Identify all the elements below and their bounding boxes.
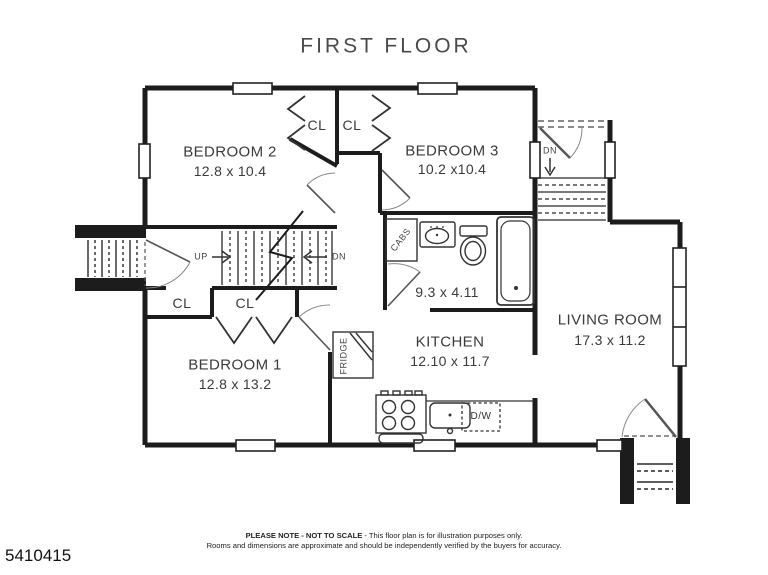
door-arc [622,399,645,437]
fridge-label: FRIDGE [340,337,349,374]
stairs-upper-right [538,121,606,220]
stairs-left-exterior [75,225,146,291]
disclaimer-line1: PLEASE NOTE - NOT TO SCALE - This floor … [0,531,768,540]
closet-label: CL [308,118,327,132]
triple-window [673,248,686,366]
room-dims-bedroom1: 12.8 x 13.2 [199,377,272,391]
room-dims-bathroom: 9.3 x 4.11 [415,285,478,299]
bedroom1-door [299,305,330,350]
closet-label: CL [343,118,362,132]
bedroom2-door [307,173,335,213]
bathroom-sink [420,222,455,247]
up-arrow-icon [212,251,230,263]
toilet [460,226,487,265]
room-dims-kitchen: 12.10 x 11.7 [410,354,490,368]
disclaimer-bold: PLEASE NOTE - NOT TO SCALE [246,531,363,540]
plan-title: FIRST FLOOR [300,36,471,57]
disclaimer-line2: Rooms and dimensions are approximate and… [0,541,768,550]
room-dims-living-room: 17.3 x 11.2 [574,333,646,347]
stove [376,391,426,443]
down-arrow-icon [545,158,555,175]
bathtub [497,217,534,305]
room-label-living-room: LIVING ROOM [558,313,662,328]
listing-id: 5410415 [5,547,71,564]
door-leaf [645,399,676,437]
up-label: UP [194,253,208,262]
disclaimer-rest: - This floor plan is for illustration pu… [362,531,522,540]
closet-label: CL [173,296,192,310]
door-arc [570,128,582,158]
down-arrow-icon [304,251,327,263]
bedroom3-door [382,170,410,210]
dishwasher-label: D/W [471,412,492,422]
room-label-bedroom2: BEDROOM 2 [183,145,277,160]
entry-door [146,240,190,288]
floor-plan-drawing [0,0,768,575]
room-label-kitchen: KITCHEN [416,335,485,350]
down-label: DN [332,253,346,262]
room-label-bedroom1: BEDROOM 1 [188,358,282,373]
floor-plan-page: FIRST FLOOR BEDROOM 2 12.8 x 10.4 BEDROO… [0,0,768,575]
room-label-bedroom3: BEDROOM 3 [405,144,499,159]
kitchen-sink [430,403,470,434]
room-dims-bedroom2: 12.8 x 10.4 [194,164,267,178]
closet-label: CL [236,296,255,310]
windows [139,83,686,451]
down-label: DN [543,147,557,156]
room-dims-bedroom3: 10.2 x10.4 [418,162,486,176]
